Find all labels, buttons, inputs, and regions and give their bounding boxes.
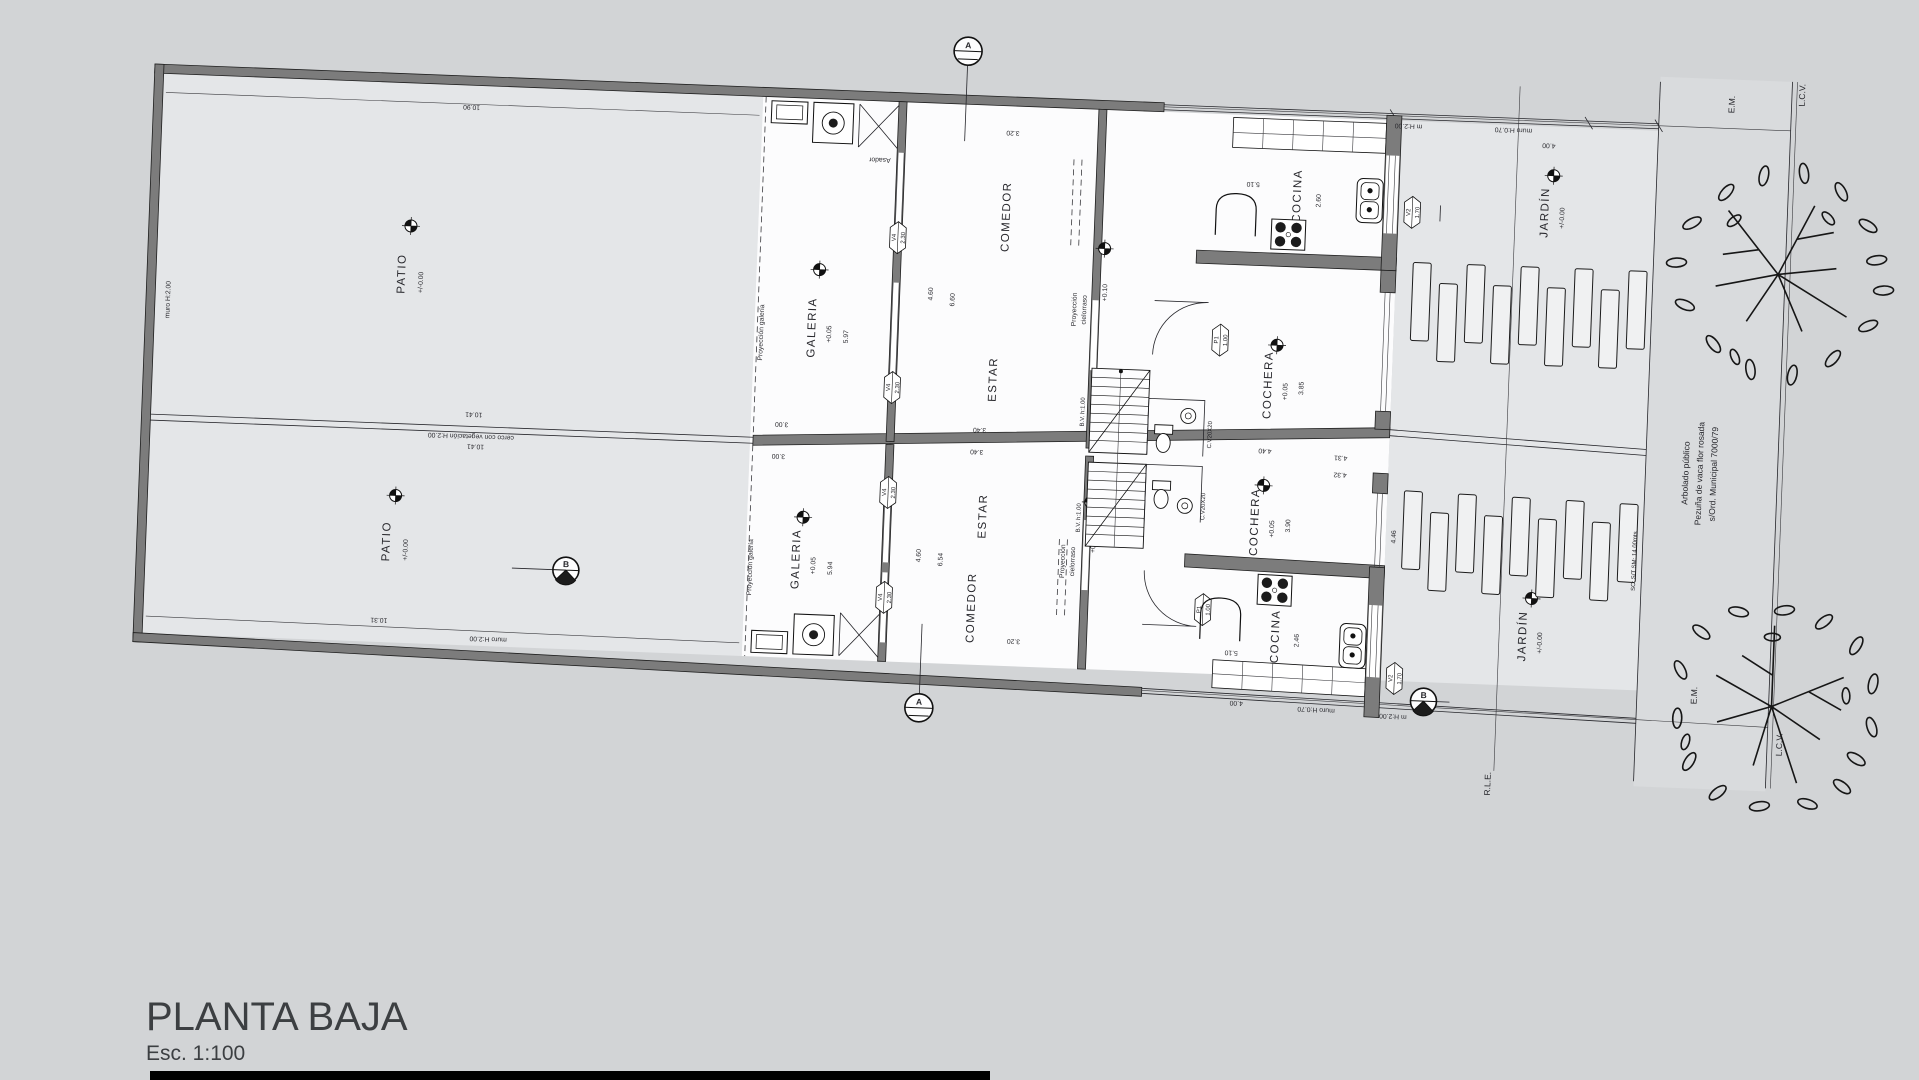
dim: 10.41: [465, 410, 482, 418]
projection-note: cielorraso: [1069, 547, 1077, 577]
room-label-jardin2: JARDÍN: [1515, 610, 1530, 661]
em-label-bottom: E.M.: [1689, 687, 1700, 705]
svg-text:1.70: 1.70: [1415, 206, 1421, 219]
patio-ground: [142, 73, 763, 656]
dim: 10.31: [370, 616, 387, 624]
svg-text:P1: P1: [1214, 336, 1220, 344]
gate-post: [1375, 411, 1391, 430]
dim: 5.97: [843, 330, 851, 344]
svg-text:A: A: [916, 697, 923, 707]
kitchen1-counter: [1233, 117, 1387, 153]
dim: 4.31: [1334, 454, 1348, 462]
room-label-patio2: PATIO: [380, 521, 394, 562]
dim: 3.40: [970, 448, 984, 456]
section-marker-b-right: B: [1410, 688, 1450, 717]
dim: 4.46: [1391, 530, 1399, 544]
dim: 4.32: [1333, 471, 1347, 479]
svg-text:V4: V4: [886, 383, 892, 391]
level: +/-0.00: [417, 271, 425, 293]
stair-note: B.V. h:1.00: [1076, 502, 1083, 532]
svg-text:1.70: 1.70: [1397, 672, 1403, 685]
dim: 4.00: [1229, 699, 1243, 707]
level: +/-0.00: [1536, 632, 1544, 654]
dim: 10.90: [463, 103, 480, 111]
asador-note: Asador: [868, 155, 891, 163]
svg-text:2.30: 2.30: [887, 591, 893, 604]
stove-icon: [1257, 574, 1292, 606]
dim: 3.40: [973, 426, 987, 434]
laundry-sink-icon: [751, 630, 788, 653]
svg-text:B: B: [1420, 690, 1427, 700]
dim: 4.00: [1542, 141, 1556, 149]
wall-note-left: muro H:2.00: [164, 281, 172, 319]
level: +0.10: [1102, 284, 1110, 302]
room-label-estar2: ESTAR: [976, 493, 990, 538]
kitchen-sink-icon: [1339, 623, 1367, 669]
gate-post: [1372, 473, 1388, 494]
projection-note: cielorraso: [1081, 295, 1089, 325]
dim: 5.10: [1246, 180, 1260, 188]
vent-note: C.V20X20: [1207, 420, 1214, 448]
page-title: PLANTA BAJA: [146, 995, 408, 1039]
room-label-jardin1: JARDÍN: [1537, 187, 1552, 238]
dim: 3.90: [1285, 519, 1293, 533]
site-plan: cerco con vegetación H:2.00 10.41 10.41 …: [127, 6, 1919, 872]
dim: 6.54: [937, 553, 945, 567]
room-label-cocina1: COCINA: [1291, 169, 1305, 223]
dim: 3.85: [1298, 381, 1306, 395]
level: +/-0.00: [402, 539, 410, 561]
room-label-patio1: PATIO: [395, 253, 409, 294]
vent-note: C.V20X20: [1200, 492, 1207, 520]
svg-text:1.00: 1.00: [1223, 334, 1229, 347]
kitchen-sink-icon: [1356, 178, 1384, 223]
dim: 3.00: [775, 420, 789, 428]
level: +0.05: [1269, 520, 1277, 538]
washer-icon: [812, 102, 854, 144]
room-label-cocina2: COCINA: [1269, 609, 1283, 663]
dim: 2.60: [1315, 194, 1323, 208]
em-label-top: E.M.: [1726, 96, 1737, 114]
level: +0.05: [810, 557, 818, 575]
wall-note-bottom: muro H:2.00: [469, 634, 507, 642]
lcv-label-bottom: L.C.V.: [1774, 733, 1785, 756]
laundry-sink-icon: [771, 101, 808, 124]
dim: 4.60: [927, 287, 935, 301]
svg-text:2.30: 2.30: [901, 231, 907, 244]
level: +0.05: [1282, 383, 1290, 401]
svg-text:V2: V2: [1406, 208, 1412, 216]
bottom-bar: [150, 1071, 990, 1080]
garden-ground: [1380, 121, 1658, 690]
dim: 3.20: [1007, 637, 1021, 645]
level: +0.05: [826, 325, 834, 343]
dim: 5.10: [1224, 648, 1238, 656]
lcv-label-top: L.C.V.: [1797, 84, 1808, 107]
fence-note: muro H:0.70: [1494, 125, 1532, 133]
dim: 4.40: [1258, 447, 1272, 455]
fence-note: muro H:0.70: [1297, 705, 1335, 714]
room-label-galeria1: GALERIA: [805, 297, 819, 358]
svg-text:V2: V2: [1388, 674, 1394, 682]
page-scale: Esc. 1:100: [146, 1042, 245, 1065]
svg-text:1.00: 1.00: [1206, 603, 1212, 616]
dim: 3.20: [1006, 129, 1020, 137]
dim: 6.60: [949, 293, 957, 307]
basin-icon: [1177, 498, 1193, 514]
svg-text:B: B: [563, 559, 570, 569]
dim: 4.60: [915, 549, 923, 563]
dim: 10.41: [467, 442, 484, 450]
level: +/-0.00: [1559, 207, 1567, 229]
dim: 3.00: [771, 452, 785, 460]
basin-icon: [1180, 408, 1196, 424]
room-label-estar1: ESTAR: [987, 357, 1001, 402]
room-label-galeria2: GALERIA: [789, 529, 803, 590]
floor-plan-canvas: cerco con vegetación H:2.00 10.41 10.41 …: [0, 0, 1919, 1080]
svg-text:A: A: [965, 40, 972, 50]
fence-note: m H:2.00: [1379, 712, 1407, 721]
svg-text:2.30: 2.30: [891, 486, 897, 499]
stair-note: B.V. h:1.00: [1080, 397, 1087, 427]
projection-note: Proyección: [1059, 544, 1067, 578]
stove-icon: [1271, 219, 1306, 250]
fence-note: m H:2.00: [1394, 122, 1422, 130]
kitchen2-window: [1366, 605, 1382, 678]
rle-label: R.L.E.: [1482, 772, 1493, 796]
washer-icon: [793, 614, 835, 656]
svg-text:V4: V4: [892, 233, 898, 241]
dim: 2.46: [1293, 634, 1301, 648]
projection-note: Proyección: [1071, 292, 1079, 326]
dim: 5.94: [827, 561, 835, 575]
svg-text:V4: V4: [882, 488, 888, 496]
svg-text:2.30: 2.30: [895, 381, 901, 394]
svg-text:V4: V4: [878, 593, 884, 601]
gate-post: [1380, 270, 1396, 293]
